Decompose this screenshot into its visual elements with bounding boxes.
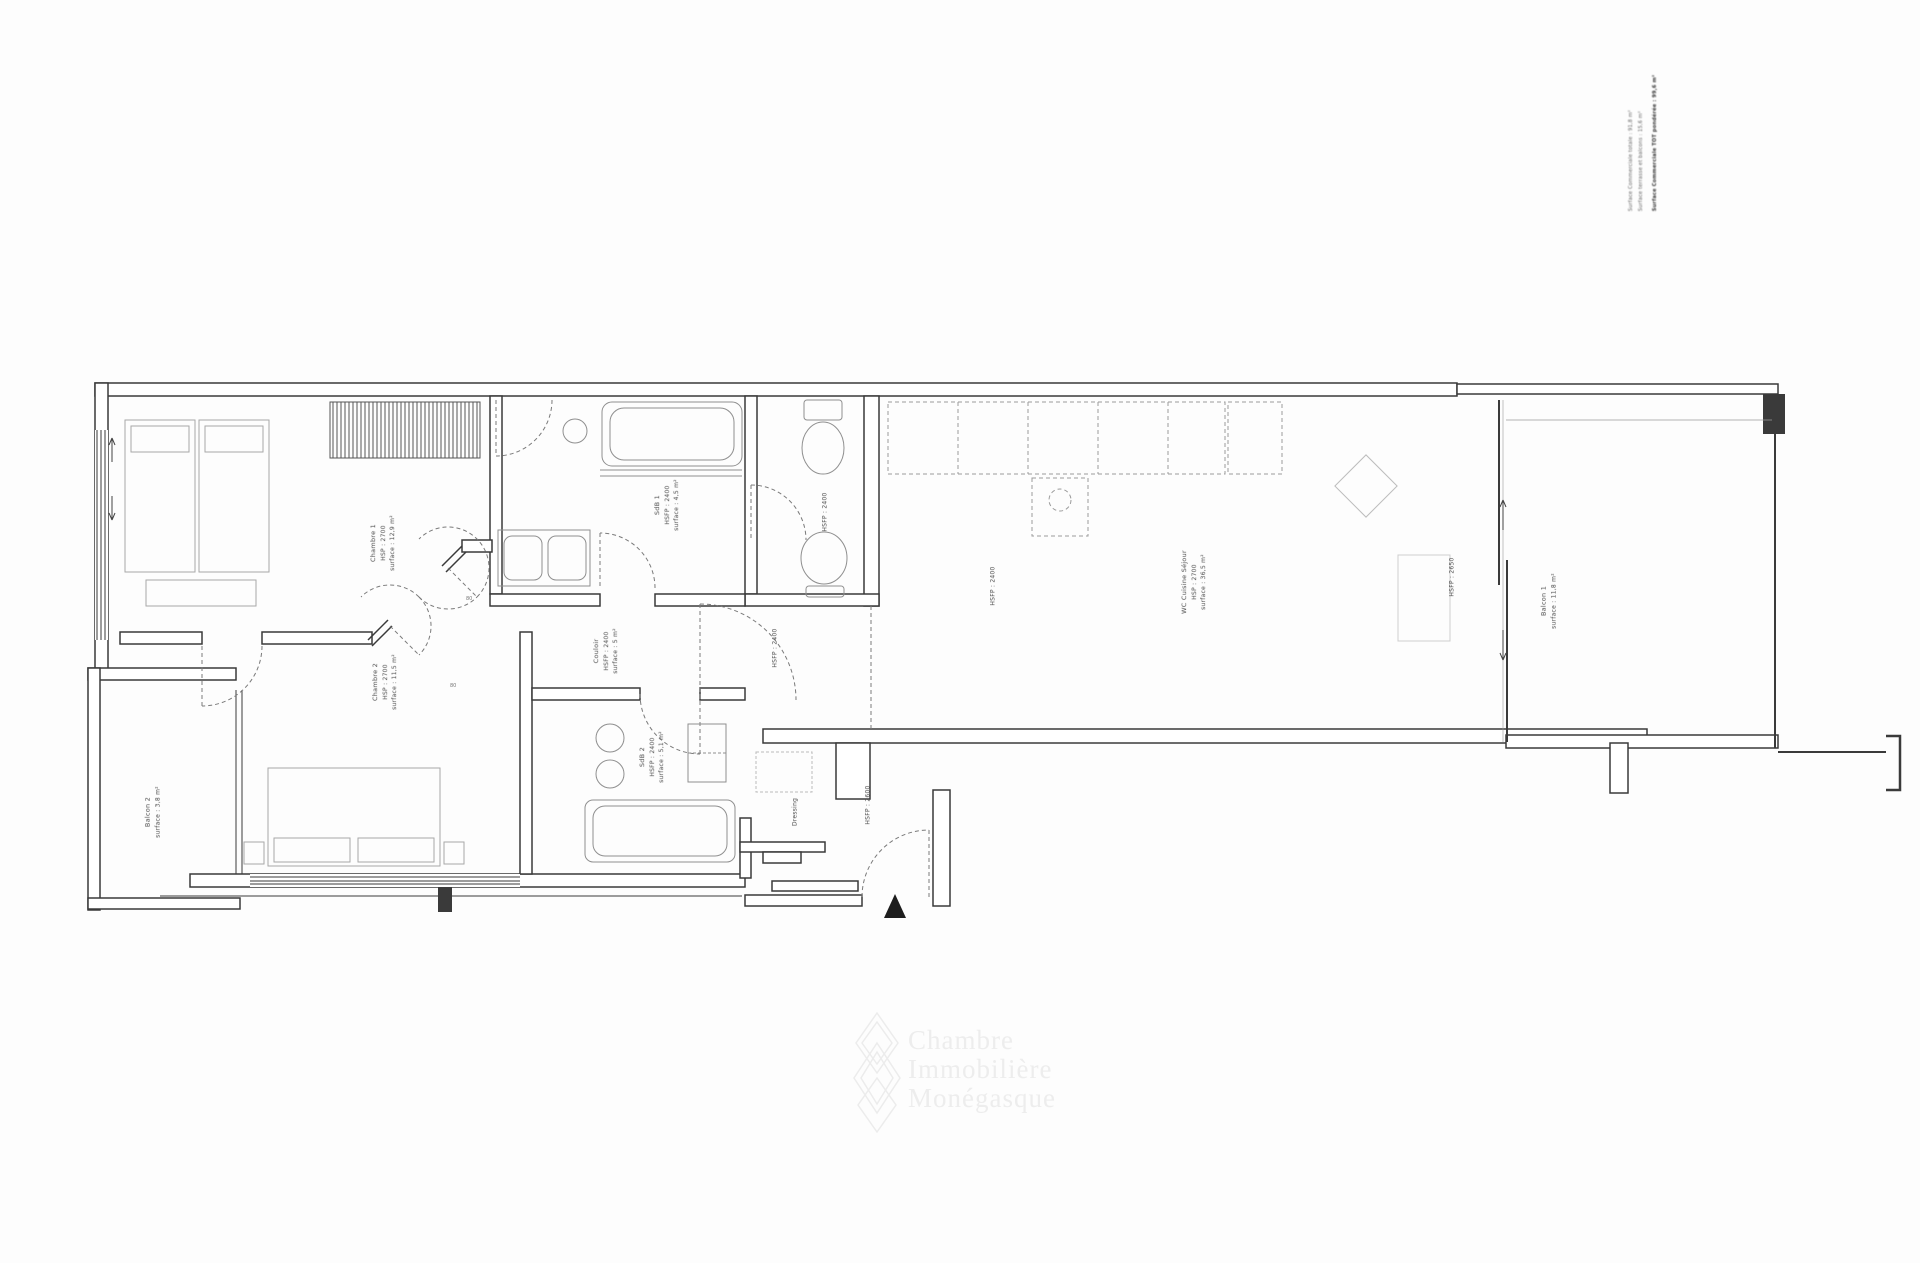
- label-line: Dressing: [791, 798, 800, 826]
- label-line: surface : 12,9 m²: [388, 515, 397, 571]
- opening-arrows: [109, 438, 1506, 660]
- label-line: HSFP : 2400: [821, 492, 830, 531]
- room-label-sdb2: SdB 2 HSFP : 2400 surface : 5,1 m²: [638, 731, 666, 783]
- info-line: Surface Commerciale TOT pondérée : 99,6 …: [1650, 75, 1660, 212]
- room-label-balcon1: Balcon 1 surface : 11,8 m²: [1540, 573, 1559, 629]
- label-line: Balcon 2: [144, 786, 154, 838]
- info-line: Surface terrasse et balcons : 15,6 m²: [1636, 75, 1646, 212]
- label-line: HSP : 2700: [379, 515, 388, 571]
- room-label-dressing: Dressing: [791, 798, 800, 826]
- label-line: Couloir: [592, 628, 602, 674]
- fixtures: [498, 400, 847, 862]
- label-line: surface : 11,8 m²: [1549, 573, 1558, 629]
- structure-extras: [160, 394, 1900, 912]
- door-swings: [202, 400, 929, 897]
- label-line: surface : 5,1 m²: [657, 731, 666, 783]
- door-width-mark: 80: [466, 596, 472, 602]
- watermark-line: Monégasque: [908, 1084, 1056, 1113]
- room-label-baie: HSFP : 2650: [1448, 557, 1457, 596]
- label-line: Chambre 1: [369, 515, 379, 571]
- label-line: HSFP : 2400: [648, 731, 657, 783]
- kitchen-units: [888, 402, 1282, 536]
- room-label-chambre2: Chambre 2 HSP : 2700 surface : 11,5 m²: [371, 654, 399, 710]
- label-line: Balcon 1: [1540, 573, 1550, 629]
- label-line: HSFP : 2650: [1448, 557, 1457, 596]
- label-line: HSP : 2700: [381, 654, 390, 710]
- room-label-hall: HSFP : 2600: [864, 785, 873, 824]
- watermark-line: Immobilière: [908, 1055, 1056, 1084]
- label-line: surface : 4,5 m²: [672, 479, 681, 531]
- watermark-logo-icon: [854, 1013, 900, 1132]
- room-label-chambre1: Chambre 1 HSP : 2700 surface : 12,9 m²: [369, 515, 397, 571]
- label-line: WC Cuisine Séjour: [1180, 550, 1190, 614]
- walls: [88, 383, 1778, 910]
- room-label-sejour: WC Cuisine Séjour HSP : 2700 surface : 3…: [1180, 550, 1208, 614]
- entrance-arrow-icon: [884, 894, 906, 918]
- label-line: HSFP : 2600: [864, 785, 873, 824]
- label-line: HSFP : 2400: [771, 628, 780, 667]
- label-line: SdB 2: [638, 731, 648, 783]
- surface-info-block: Surface Commerciale totale : 91,8 m² Sur…: [1626, 75, 1660, 212]
- label-line: surface : 3,8 m²: [153, 786, 162, 838]
- label-line: HSFP : 2400: [663, 479, 672, 531]
- label-line: Chambre 2: [371, 654, 381, 710]
- room-label-couloir: Couloir HSFP : 2400 surface : 5 m²: [592, 628, 620, 674]
- label-line: SdB 1: [653, 479, 663, 531]
- floor-plan-page: Chambre 1 HSP : 2700 surface : 12,9 m² S…: [0, 0, 1920, 1263]
- room-label-entree: HSFP : 2400: [771, 628, 780, 667]
- room-label-wc: HSFP : 2400: [821, 492, 830, 531]
- label-line: surface : 11,5 m²: [390, 654, 399, 710]
- label-line: surface : 36,5 m²: [1199, 550, 1208, 614]
- label-line: HSFP : 2400: [989, 566, 998, 605]
- door-width-mark: 80: [450, 683, 456, 689]
- room-label-cuisine: HSFP : 2400: [989, 566, 998, 605]
- label-line: HSP : 2700: [1190, 550, 1199, 614]
- label-line: HSFP : 2400: [602, 628, 611, 674]
- wardrobe-hatch: [330, 402, 480, 458]
- room-label-sdb1: SdB 1 HSFP : 2400 surface : 4,5 m²: [653, 479, 681, 531]
- info-line: Surface Commerciale totale : 91,8 m²: [1626, 75, 1636, 212]
- room-label-balcon2: Balcon 2 surface : 3,8 m²: [144, 786, 163, 838]
- label-line: surface : 5 m²: [611, 628, 620, 674]
- watermark-line: Chambre: [908, 1026, 1056, 1055]
- watermark-text: Chambre Immobilière Monégasque: [908, 1026, 1056, 1113]
